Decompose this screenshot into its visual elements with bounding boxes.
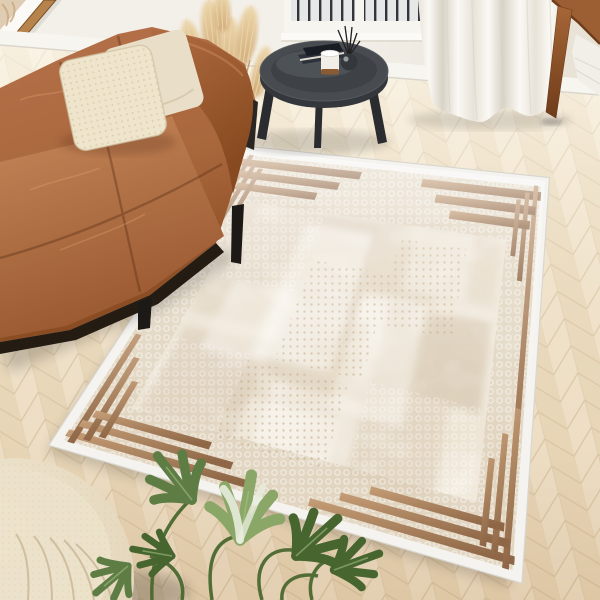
railing-bar <box>374 0 376 21</box>
railing-bar <box>308 0 310 21</box>
window-sill <box>281 33 439 40</box>
diffuser-ball <box>341 54 358 71</box>
railing-bar <box>319 0 321 21</box>
railing-bar <box>330 0 332 21</box>
desk-leg-shadow <box>541 119 563 126</box>
candle-base <box>321 69 339 75</box>
product-photo <box>0 0 600 600</box>
railing-bar <box>396 0 398 21</box>
railing-bar <box>341 0 343 21</box>
window-rail <box>291 21 430 28</box>
railing-bar <box>385 0 387 21</box>
railing-bar <box>297 0 299 21</box>
scene-canvas <box>0 0 600 600</box>
railing-bar <box>407 0 409 21</box>
railing-bar <box>352 0 354 21</box>
diffuser-highlight <box>343 56 348 61</box>
window <box>281 0 439 42</box>
candle-top <box>321 50 339 56</box>
sofa-leg-mid <box>138 298 152 330</box>
pillow-textured <box>57 43 168 153</box>
